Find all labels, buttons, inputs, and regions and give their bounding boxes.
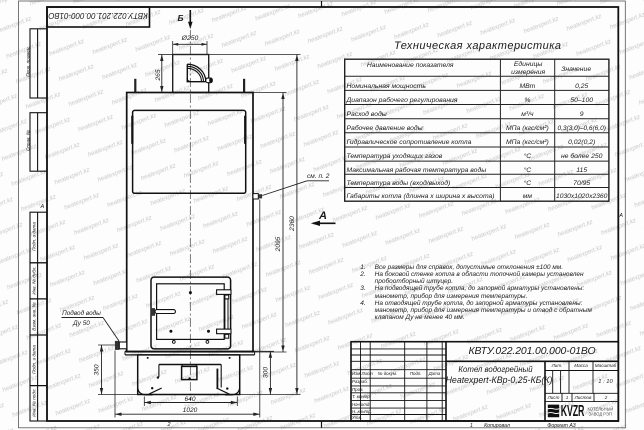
svg-text:265: 265 (155, 69, 162, 81)
svg-text:300: 300 (262, 367, 269, 378)
svg-text:2360: 2360 (289, 216, 296, 232)
svg-text:350: 350 (94, 364, 101, 375)
svg-text:2095: 2095 (275, 236, 282, 252)
